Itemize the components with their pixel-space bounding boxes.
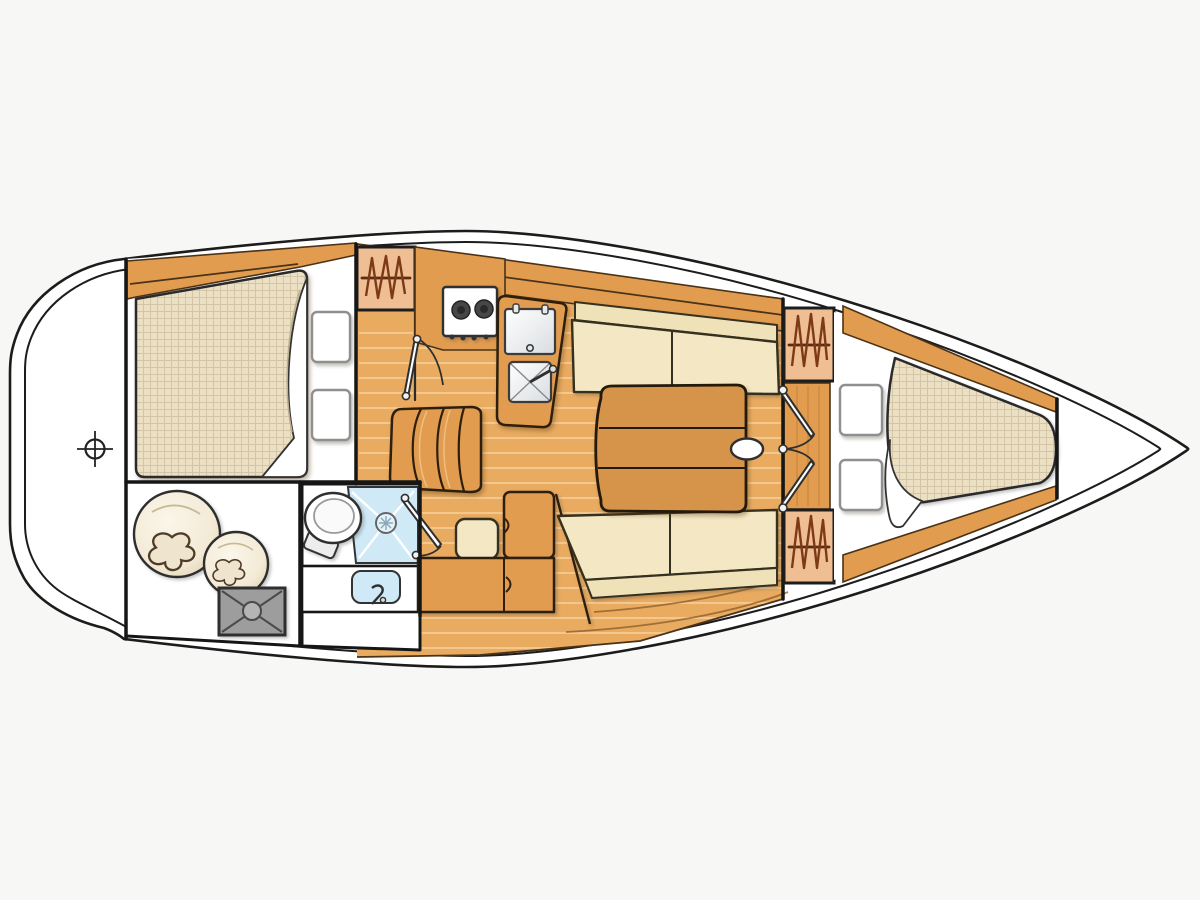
mast-post xyxy=(731,439,763,460)
chart-table-front xyxy=(418,558,554,612)
hanging-locker-galley xyxy=(357,247,415,310)
head-compartment xyxy=(302,484,420,650)
aft-double-berth xyxy=(136,271,307,477)
hanging-locker-forward-upper xyxy=(784,308,834,381)
aft-pillow-2 xyxy=(312,390,350,440)
forward-bulkhead xyxy=(779,299,834,599)
galley-sink xyxy=(509,362,557,402)
aft-pillow-1 xyxy=(312,312,350,362)
aft-cabin xyxy=(126,243,356,482)
forward-pillow-1 xyxy=(840,385,882,435)
floor-plan-canvas xyxy=(0,0,1200,900)
icebox xyxy=(505,304,555,354)
icebox-hinge-1 xyxy=(513,304,519,313)
galley-stove xyxy=(443,287,497,341)
nav-seat xyxy=(456,519,498,559)
salon-table xyxy=(596,385,746,512)
sail-locker xyxy=(126,482,300,646)
icebox-hinge-2 xyxy=(542,305,548,314)
hanging-locker-forward-lower xyxy=(784,510,834,583)
settee-starboard xyxy=(558,510,777,598)
washbasin-counter xyxy=(302,566,420,612)
forward-pillow-2 xyxy=(840,460,882,510)
boat-floor-plan xyxy=(0,0,1200,900)
companionway-steps xyxy=(390,407,481,492)
storage-hatch xyxy=(219,588,285,635)
